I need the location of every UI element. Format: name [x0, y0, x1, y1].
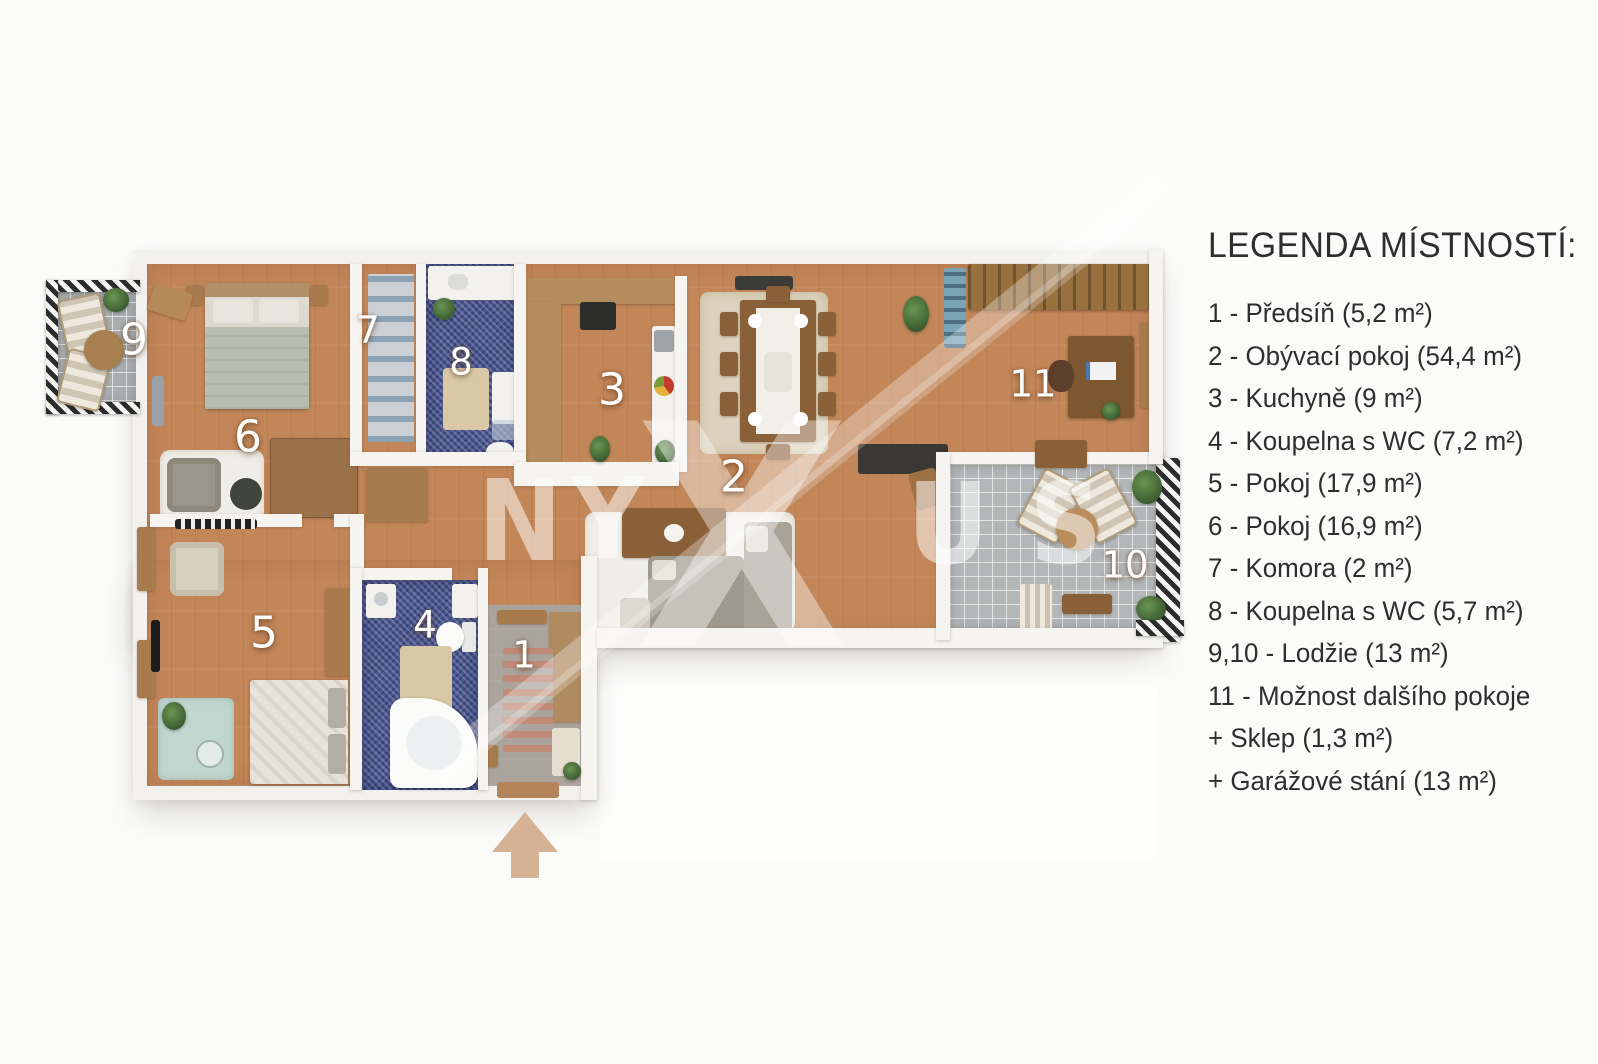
- decor-tray: [196, 740, 224, 768]
- bathroom-plant: [433, 298, 455, 320]
- bed-pillow: [259, 299, 299, 323]
- watermark-letter: X: [634, 360, 849, 721]
- balcony-10-mat: [1020, 584, 1052, 630]
- kitchen-counter-left: [525, 302, 561, 470]
- dresser: [270, 438, 358, 518]
- room-number-5: 5: [250, 608, 278, 659]
- wall: [581, 556, 597, 800]
- floor-plant: [162, 702, 186, 730]
- bed-pillow: [328, 688, 346, 728]
- balcony-9-round-table: [84, 330, 124, 370]
- cabinet: [137, 527, 155, 591]
- tv-screen: [151, 620, 160, 672]
- living-plant: [903, 296, 929, 332]
- legend-item-11: 11 - Možnost dalšího pokoje: [1208, 675, 1577, 718]
- balcony-9-railing-top: [46, 280, 140, 292]
- bed-duvet: [205, 327, 309, 409]
- armchair: [170, 542, 224, 596]
- wall: [350, 568, 362, 790]
- bed-pillow: [328, 734, 346, 774]
- armchair: [167, 458, 221, 512]
- bed-pillow: [213, 299, 253, 323]
- washer-door: [374, 592, 388, 606]
- balcony-10-railing-bottom: [1136, 620, 1184, 636]
- laptop: [1086, 362, 1116, 380]
- legend-item-sklep: + Sklep (1,3 m²): [1208, 717, 1577, 760]
- wall: [1149, 250, 1163, 464]
- legend-item-6: 6 - Pokoj (16,9 m²): [1208, 505, 1577, 548]
- nightstand: [311, 285, 328, 305]
- legend-item-garaz: + Garážové stání (13 m²): [1208, 760, 1577, 803]
- balcony-10-bench: [1062, 594, 1112, 614]
- room-number-3: 3: [598, 365, 626, 416]
- washbasin: [452, 584, 478, 618]
- wall: [350, 264, 362, 456]
- legend-item-9-10: 9,10 - Lodžie (13 m²): [1208, 632, 1577, 675]
- dining-chair: [818, 312, 836, 336]
- sink-basin: [448, 274, 468, 290]
- balcony-10-plant: [1132, 470, 1162, 504]
- wall: [416, 264, 426, 462]
- radiator: [175, 519, 257, 529]
- legend-item-7: 7 - Komora (2 m²): [1208, 547, 1577, 590]
- dining-chair: [766, 286, 790, 302]
- dining-chair: [720, 312, 738, 336]
- plate: [748, 314, 762, 328]
- watermark-letter: S: [1030, 460, 1103, 590]
- room-number-10: 10: [1101, 544, 1148, 587]
- wall: [350, 514, 364, 574]
- watermark-letter: N: [478, 457, 562, 587]
- double-bed: [250, 680, 356, 784]
- wall: [514, 264, 526, 462]
- entrance-door-threshold: [497, 782, 559, 798]
- legend-item-3: 3 - Kuchyně (9 m²): [1208, 377, 1577, 420]
- desk: [1068, 336, 1134, 418]
- entrance-arrow-icon: [492, 812, 558, 852]
- watermark-letter: U: [907, 460, 989, 590]
- room-number-4: 4: [413, 604, 437, 647]
- room-number-9: 9: [120, 315, 148, 366]
- legend-item-8: 8 - Koupelna s WC (5,7 m²): [1208, 590, 1577, 633]
- hall-shelf: [497, 610, 547, 624]
- toilet-tank: [462, 622, 476, 652]
- room-number-6: 6: [234, 412, 262, 463]
- washing-machine: [366, 584, 396, 618]
- wall: [352, 568, 452, 580]
- wall-throw: [152, 376, 164, 426]
- kitchen-sink: [654, 330, 674, 352]
- desk-plant: [1102, 402, 1120, 420]
- floor-plan-page: N Y X U S 1 2 3 4 5 6 7 8 9 10 11 LEGEND…: [0, 0, 1598, 1064]
- balcony-9-railing-left: [46, 280, 58, 414]
- room-number-1: 1: [512, 634, 536, 677]
- bed-headboard: [205, 283, 309, 297]
- corridor-wardrobe: [366, 468, 428, 522]
- double-bed: [205, 283, 309, 409]
- room-number-8: 8: [449, 341, 473, 384]
- legend: LEGENDA MÍSTNOSTÍ: 1 - Předsíň (5,2 m²) …: [1208, 226, 1577, 802]
- bathroom-counter: [428, 266, 516, 300]
- cooktop: [580, 302, 616, 330]
- hall-plant: [563, 762, 581, 780]
- plate: [794, 314, 808, 328]
- balcony-9-plant: [103, 288, 129, 312]
- balcony-10-plant: [1136, 596, 1166, 622]
- coffee-table: [230, 478, 262, 510]
- kitchen-counter-top: [525, 278, 680, 304]
- entrance-arrow-icon: [511, 850, 539, 878]
- legend-item-5: 5 - Pokoj (17,9 m²): [1208, 462, 1577, 505]
- legend-item-4: 4 - Koupelna s WC (7,2 m²): [1208, 420, 1577, 463]
- shower-glass: [492, 420, 516, 440]
- clothes-rack: [368, 274, 414, 442]
- room-number-11: 11: [1009, 363, 1056, 406]
- room-number-2: 2: [720, 452, 748, 503]
- legend-item-2: 2 - Obývací pokoj (54,4 m²): [1208, 335, 1577, 378]
- legend-title: LEGENDA MÍSTNOSTÍ:: [1208, 226, 1577, 266]
- legend-item-1: 1 - Předsíň (5,2 m²): [1208, 292, 1577, 335]
- room-number-7: 7: [356, 309, 380, 352]
- washbasin: [492, 372, 516, 424]
